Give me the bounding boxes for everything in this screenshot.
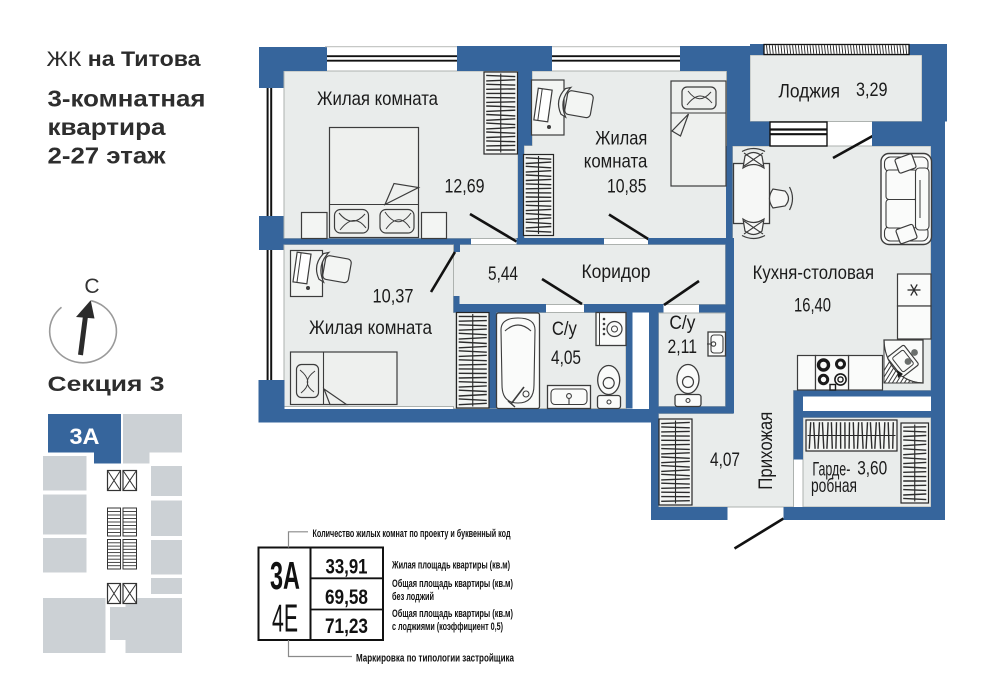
svg-text:4,07: 4,07 <box>710 449 740 471</box>
svg-text:Маркировка по типологии застро: Маркировка по типологии застройщика <box>356 653 515 665</box>
svg-text:10,37: 10,37 <box>373 286 414 308</box>
svg-text:С/у: С/у <box>669 312 695 334</box>
svg-text:71,23: 71,23 <box>325 614 368 638</box>
svg-text:Жилая комната: Жилая комната <box>309 317 432 339</box>
svg-text:Прихожая: Прихожая <box>755 412 777 490</box>
svg-text:Общая площадь квартиры (кв.м): Общая площадь квартиры (кв.м) <box>392 608 513 620</box>
svg-text:робная: робная <box>811 475 857 497</box>
svg-text:Кухня-столовая: Кухня-столовая <box>753 262 874 284</box>
svg-text:Общая площадь квартиры (кв.м): Общая площадь квартиры (кв.м) <box>392 578 513 590</box>
svg-text:С/у: С/у <box>552 318 577 340</box>
svg-text:16,40: 16,40 <box>794 295 831 317</box>
svg-text:10,85: 10,85 <box>607 176 647 198</box>
svg-text:3-комнатная: 3-комнатная <box>48 86 206 112</box>
svg-text:3А: 3А <box>270 555 300 598</box>
svg-text:Жилая комната: Жилая комната <box>317 88 438 110</box>
svg-text:ЖК на Титова: ЖК на Титова <box>47 47 202 71</box>
svg-text:33,91: 33,91 <box>326 555 368 579</box>
svg-text:2-27 этаж: 2-27 этаж <box>48 143 167 169</box>
svg-text:Секция 3: Секция 3 <box>48 372 165 396</box>
svg-text:с лоджиями (коэффициент 0,5): с лоджиями (коэффициент 0,5) <box>392 621 503 633</box>
svg-text:4Е: 4Е <box>272 598 298 641</box>
svg-text:3,60: 3,60 <box>857 458 887 480</box>
svg-text:3,29: 3,29 <box>856 79 888 101</box>
svg-text:3А: 3А <box>70 424 100 449</box>
svg-text:12,69: 12,69 <box>445 176 485 198</box>
svg-text:квартира: квартира <box>48 114 166 140</box>
svg-text:2,11: 2,11 <box>668 336 698 358</box>
svg-text:Жилая площадь квартиры (кв.м): Жилая площадь квартиры (кв.м) <box>391 560 510 572</box>
svg-text:Коридор: Коридор <box>582 261 651 283</box>
svg-text:Лоджия: Лоджия <box>779 81 841 103</box>
svg-text:Количество жилых комнат по про: Количество жилых комнат по проекту и бук… <box>313 528 511 540</box>
svg-text:4,05: 4,05 <box>551 347 581 369</box>
svg-text:без лоджий: без лоджий <box>392 591 434 603</box>
svg-text:Жилая: Жилая <box>595 128 647 150</box>
svg-text:С: С <box>84 275 99 298</box>
svg-text:69,58: 69,58 <box>325 585 368 609</box>
svg-text:комната: комната <box>584 151 648 173</box>
svg-text:5,44: 5,44 <box>488 263 518 285</box>
